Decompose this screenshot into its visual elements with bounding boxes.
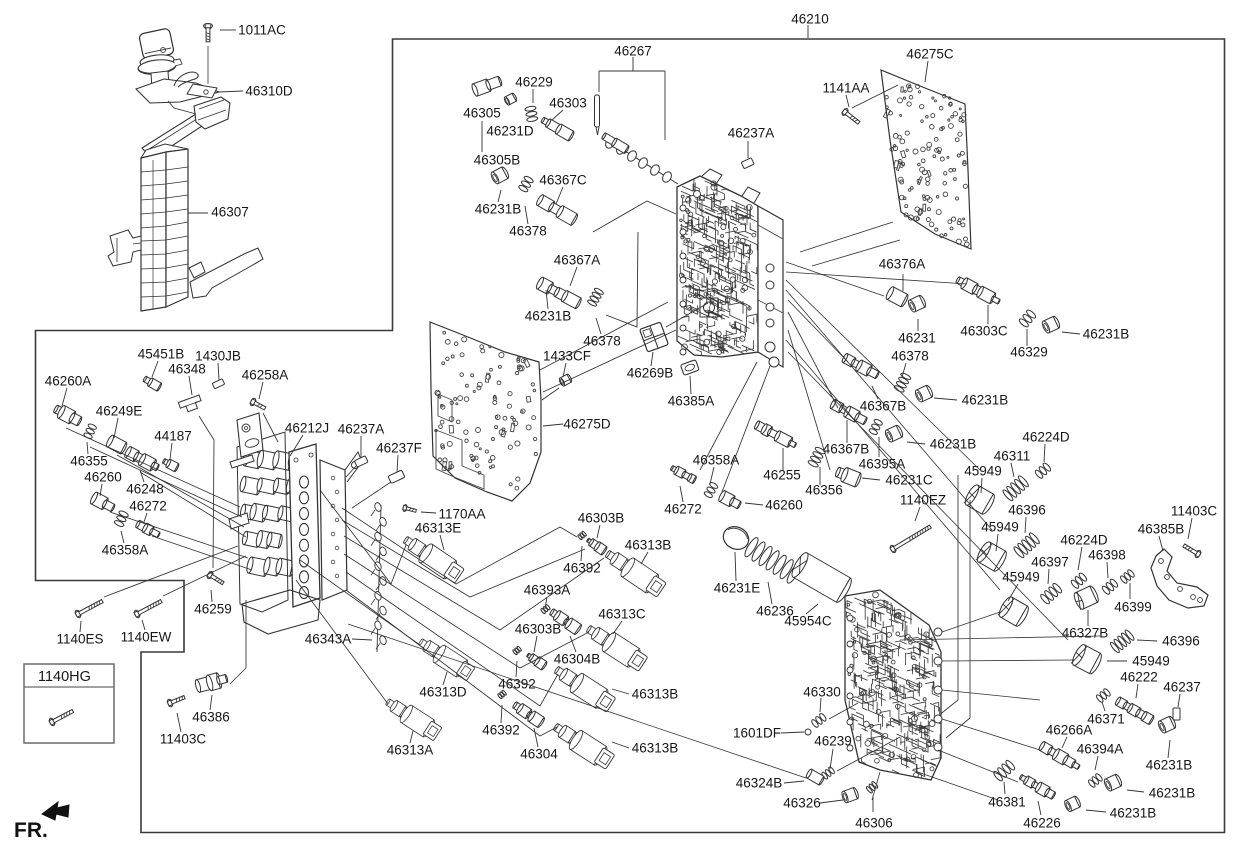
svg-text:46348: 46348 <box>168 362 206 377</box>
svg-text:46371: 46371 <box>1087 712 1125 727</box>
svg-text:46305B: 46305B <box>474 153 521 168</box>
svg-text:46392: 46392 <box>498 677 536 692</box>
svg-text:46304: 46304 <box>520 747 558 762</box>
svg-text:45451B: 45451B <box>138 347 185 362</box>
svg-text:46222: 46222 <box>1120 670 1158 685</box>
svg-text:46231B: 46231B <box>1146 758 1193 773</box>
svg-text:1141AA: 1141AA <box>822 81 869 96</box>
svg-text:46231B: 46231B <box>1083 327 1130 342</box>
svg-text:46210: 46210 <box>791 12 829 27</box>
svg-text:46260: 46260 <box>84 470 122 485</box>
svg-text:46343A: 46343A <box>305 632 352 647</box>
svg-text:46367C: 46367C <box>539 173 587 188</box>
svg-text:46229: 46229 <box>515 75 553 90</box>
svg-text:46307: 46307 <box>211 205 249 220</box>
svg-text:46224D: 46224D <box>1022 430 1070 445</box>
svg-text:46275D: 46275D <box>563 417 611 432</box>
svg-text:46313B: 46313B <box>632 687 679 702</box>
svg-text:46313A: 46313A <box>387 743 434 758</box>
svg-text:46386: 46386 <box>192 710 230 725</box>
svg-text:46231B: 46231B <box>962 393 1009 408</box>
svg-text:46397: 46397 <box>1031 555 1069 570</box>
svg-text:1170AA: 1170AA <box>438 507 485 522</box>
svg-text:46237A: 46237A <box>728 126 775 141</box>
svg-text:46311: 46311 <box>994 449 1031 464</box>
svg-text:46355: 46355 <box>70 454 108 469</box>
svg-text:46395A: 46395A <box>859 457 906 472</box>
svg-text:46231E: 46231E <box>714 581 761 596</box>
svg-text:46304B: 46304B <box>554 652 601 667</box>
svg-text:1601DF: 1601DF <box>733 726 781 741</box>
svg-text:FR.: FR. <box>14 819 48 842</box>
svg-text:46303: 46303 <box>549 96 587 111</box>
svg-text:1140ES: 1140ES <box>56 632 103 647</box>
svg-text:46267: 46267 <box>614 44 652 59</box>
svg-text:46310D: 46310D <box>245 84 293 99</box>
svg-text:46326: 46326 <box>783 796 821 811</box>
svg-text:46313D: 46313D <box>419 685 467 700</box>
svg-text:46358A: 46358A <box>102 543 149 558</box>
svg-text:46356: 46356 <box>805 483 843 498</box>
svg-text:46255: 46255 <box>763 468 801 483</box>
svg-text:46237A: 46237A <box>338 422 385 437</box>
svg-text:46399: 46399 <box>1114 600 1152 615</box>
svg-text:45949: 45949 <box>1002 570 1040 585</box>
svg-text:46231B: 46231B <box>525 309 572 324</box>
svg-text:45954C: 45954C <box>784 614 832 629</box>
svg-text:46231B: 46231B <box>475 202 522 217</box>
svg-text:46258A: 46258A <box>242 368 289 383</box>
svg-text:46393A: 46393A <box>524 583 571 598</box>
svg-text:46269B: 46269B <box>627 366 674 381</box>
svg-text:46313B: 46313B <box>632 741 679 756</box>
svg-text:46231B: 46231B <box>1110 806 1157 821</box>
svg-text:1011AC: 1011AC <box>238 23 286 38</box>
svg-text:46367A: 46367A <box>554 253 601 268</box>
svg-text:46398: 46398 <box>1088 548 1126 563</box>
svg-text:46237F: 46237F <box>376 441 422 456</box>
svg-text:46266A: 46266A <box>1046 723 1093 738</box>
svg-text:46378: 46378 <box>891 349 929 364</box>
svg-text:46239: 46239 <box>814 734 852 749</box>
svg-text:46396: 46396 <box>1162 634 1200 649</box>
svg-text:46385B: 46385B <box>1138 522 1185 537</box>
svg-text:46231B: 46231B <box>1149 786 1196 801</box>
svg-text:45949: 45949 <box>981 520 1019 535</box>
svg-text:46224D: 46224D <box>1060 533 1108 548</box>
svg-text:46231C: 46231C <box>885 473 933 488</box>
svg-text:46367B: 46367B <box>860 399 907 414</box>
svg-text:46385A: 46385A <box>668 394 715 409</box>
svg-text:46392: 46392 <box>482 723 520 738</box>
svg-text:1140HG: 1140HG <box>38 669 91 685</box>
svg-text:46249E: 46249E <box>96 404 143 419</box>
svg-text:46237: 46237 <box>1163 680 1201 695</box>
svg-text:46248: 46248 <box>126 482 164 497</box>
svg-text:44187: 44187 <box>154 429 192 444</box>
svg-text:46327B: 46327B <box>1062 626 1109 641</box>
svg-text:46305: 46305 <box>463 106 501 121</box>
svg-text:46303B: 46303B <box>515 622 562 637</box>
svg-text:46272: 46272 <box>664 502 702 517</box>
svg-text:46313E: 46313E <box>415 521 462 536</box>
svg-text:46378: 46378 <box>583 334 621 349</box>
svg-text:45949: 45949 <box>964 464 1002 479</box>
svg-text:46226: 46226 <box>1023 816 1061 831</box>
svg-text:46324B: 46324B <box>736 776 783 791</box>
svg-text:46381: 46381 <box>988 795 1026 810</box>
svg-text:46275C: 46275C <box>906 47 954 62</box>
svg-text:1140EW: 1140EW <box>121 630 172 645</box>
svg-text:46231: 46231 <box>898 331 936 346</box>
svg-text:46313B: 46313B <box>625 538 672 553</box>
svg-text:45949: 45949 <box>1132 654 1170 669</box>
svg-text:46260: 46260 <box>765 498 803 513</box>
svg-text:46313C: 46313C <box>598 607 646 622</box>
svg-text:46367B: 46367B <box>823 442 870 457</box>
svg-text:46231D: 46231D <box>486 124 534 139</box>
svg-text:46212J: 46212J <box>285 421 329 436</box>
svg-text:46306: 46306 <box>855 816 893 831</box>
svg-text:46303B: 46303B <box>578 511 625 526</box>
svg-text:46259: 46259 <box>194 602 232 617</box>
svg-text:46303C: 46303C <box>960 324 1008 339</box>
svg-text:46394A: 46394A <box>1077 742 1124 757</box>
svg-text:11403C: 11403C <box>160 732 207 747</box>
svg-text:46329: 46329 <box>1010 345 1048 360</box>
svg-text:46260A: 46260A <box>45 374 92 389</box>
svg-text:46376A: 46376A <box>879 257 926 272</box>
svg-text:46272: 46272 <box>129 499 167 514</box>
svg-text:46396: 46396 <box>1008 503 1046 518</box>
svg-text:46378: 46378 <box>509 224 547 239</box>
svg-text:11403C: 11403C <box>1171 504 1218 519</box>
svg-text:46330: 46330 <box>803 685 841 700</box>
